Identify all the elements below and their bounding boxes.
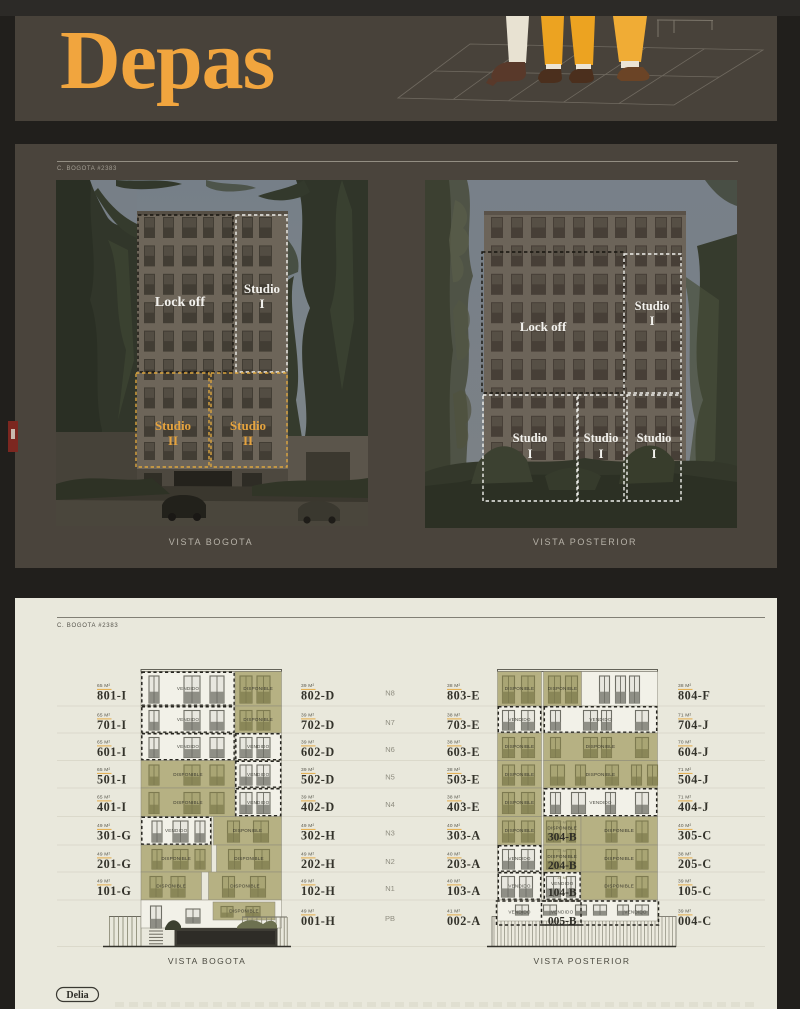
svg-text:401-I: 401-I [97,800,127,814]
svg-text:204-B: 204-B [548,860,577,872]
svg-text:203-A: 203-A [447,857,481,871]
svg-text:VISTA BOGOTA: VISTA BOGOTA [168,956,246,966]
svg-text:VENDIDO: VENDIDO [247,744,270,749]
svg-text:305-C: 305-C [678,829,712,843]
svg-text:VENDIDO: VENDIDO [508,910,531,915]
svg-text:DISPONIBLE: DISPONIBLE [229,909,259,914]
svg-text:Studio: Studio [230,418,266,433]
svg-text:004-C: 004-C [678,914,712,928]
svg-text:Delia: Delia [66,990,88,1001]
svg-text:I: I [259,296,264,311]
svg-text:N6: N6 [385,745,395,754]
svg-text:DISPONIBLE: DISPONIBLE [505,800,535,805]
svg-text:101-G: 101-G [97,884,131,898]
svg-text:VENDIDO: VENDIDO [508,884,531,889]
svg-text:404-J: 404-J [678,800,709,814]
svg-text:N1: N1 [385,884,395,893]
svg-text:Studio: Studio [155,418,191,433]
svg-text:205-C: 205-C [678,857,712,871]
svg-text:C. BOGOTA #2383: C. BOGOTA #2383 [57,623,118,629]
svg-text:N5: N5 [385,773,395,782]
svg-text:802-D: 802-D [301,689,335,703]
svg-text:DISPONIBLE: DISPONIBLE [505,772,535,777]
svg-text:N4: N4 [385,800,395,809]
svg-text:Studio: Studio [637,431,672,445]
svg-text:VENDIDO: VENDIDO [177,717,200,722]
svg-text:303-A: 303-A [447,829,481,843]
svg-text:602-D: 602-D [301,745,335,759]
svg-text:DISPONIBLE: DISPONIBLE [173,800,203,805]
svg-text:Studio: Studio [244,281,280,296]
svg-text:105-C: 105-C [678,884,712,898]
svg-text:502-D: 502-D [301,773,335,787]
svg-text:002-A: 002-A [447,914,481,928]
svg-text:001-H: 001-H [301,914,335,928]
svg-text:701-I: 701-I [97,718,127,732]
svg-text:DISPONIBLE: DISPONIBLE [230,884,260,889]
svg-text:N2: N2 [385,857,395,866]
svg-text:DISPONIBLE: DISPONIBLE [505,686,535,691]
svg-text:VENDIDO: VENDIDO [247,800,270,805]
svg-text:201-G: 201-G [97,857,131,871]
svg-text:304-B: 304-B [548,832,577,844]
svg-text:DISPONIBLE: DISPONIBLE [548,686,578,691]
svg-text:DISPONIBLE: DISPONIBLE [586,744,616,749]
svg-text:Studio: Studio [635,299,670,313]
svg-text:VENDIDO: VENDIDO [177,686,200,691]
svg-text:DISPONIBLE: DISPONIBLE [156,884,186,889]
svg-text:DISPONIBLE: DISPONIBLE [604,828,634,833]
svg-text:104-B: 104-B [548,887,577,899]
svg-text:DISPONIBLE: DISPONIBLE [604,856,634,861]
svg-text:202-H: 202-H [301,857,335,871]
svg-text:102-H: 102-H [301,884,335,898]
svg-text:PB: PB [385,914,395,923]
svg-text:VENDIDO: VENDIDO [551,881,574,886]
svg-text:VENDIDO: VENDIDO [247,772,270,777]
svg-text:DISPONIBLE: DISPONIBLE [505,744,535,749]
svg-text:DISPONIBLE: DISPONIBLE [505,828,535,833]
svg-text:I: I [528,447,533,461]
svg-text:VISTA POSTERIOR: VISTA POSTERIOR [534,956,631,966]
svg-text:DISPONIBLE: DISPONIBLE [586,772,616,777]
svg-text:402-D: 402-D [301,800,335,814]
svg-text:703-E: 703-E [447,718,480,732]
svg-text:501-I: 501-I [97,773,127,787]
svg-text:N3: N3 [385,829,395,838]
svg-text:VENDIDO: VENDIDO [551,910,574,915]
svg-text:DISPONIBLE: DISPONIBLE [234,856,264,861]
svg-text:Lock off: Lock off [155,295,206,310]
svg-text:Lock off: Lock off [520,319,567,334]
svg-text:DISPONIBLE: DISPONIBLE [604,884,634,889]
svg-text:N8: N8 [385,689,395,698]
svg-text:DISPONIBLE: DISPONIBLE [233,828,263,833]
svg-text:VENDIDO: VENDIDO [508,717,531,722]
svg-text:DISPONIBLE: DISPONIBLE [173,772,203,777]
svg-text:103-A: 103-A [447,884,481,898]
svg-text:37 M²: 37 M² [557,820,567,824]
svg-text:504-J: 504-J [678,773,709,787]
svg-text:DISPONIBLE: DISPONIBLE [161,856,191,861]
svg-text:804-F: 804-F [678,689,710,703]
svg-text:Studio: Studio [513,431,548,445]
svg-text:601-I: 601-I [97,745,127,759]
svg-text:503-E: 503-E [447,773,480,787]
svg-text:604-J: 604-J [678,745,709,759]
svg-text:DISPONIBLE: DISPONIBLE [243,717,273,722]
svg-text:VENDIDO: VENDIDO [177,744,200,749]
svg-text:II: II [168,433,178,448]
svg-text:I: I [652,447,657,461]
svg-text:704-J: 704-J [678,718,709,732]
svg-text:I: I [650,314,655,328]
svg-text:DISPONIBLE: DISPONIBLE [547,854,577,859]
svg-text:VENDIDO: VENDIDO [165,828,188,833]
svg-text:302-H: 302-H [301,829,335,843]
svg-text:Studio: Studio [584,431,619,445]
svg-text:702-D: 702-D [301,718,335,732]
svg-text:803-E: 803-E [447,689,480,703]
svg-text:301-G: 301-G [97,829,131,843]
svg-text:VENDIDO: VENDIDO [508,856,531,861]
svg-text:I: I [599,447,604,461]
svg-text:403-E: 403-E [447,800,480,814]
svg-text:37 M²: 37 M² [557,876,567,880]
svg-text:DISPONIBLE: DISPONIBLE [547,826,577,831]
svg-text:N7: N7 [385,718,395,727]
svg-text:603-E: 603-E [447,745,480,759]
svg-text:II: II [243,433,253,448]
svg-text:37 M²: 37 M² [557,849,567,853]
svg-text:801-I: 801-I [97,689,127,703]
svg-text:VENDIDO: VENDIDO [589,800,612,805]
svg-text:VENDIDO: VENDIDO [624,910,647,915]
svg-text:DISPONIBLE: DISPONIBLE [243,686,273,691]
svg-text:VENDIDO: VENDIDO [589,717,612,722]
